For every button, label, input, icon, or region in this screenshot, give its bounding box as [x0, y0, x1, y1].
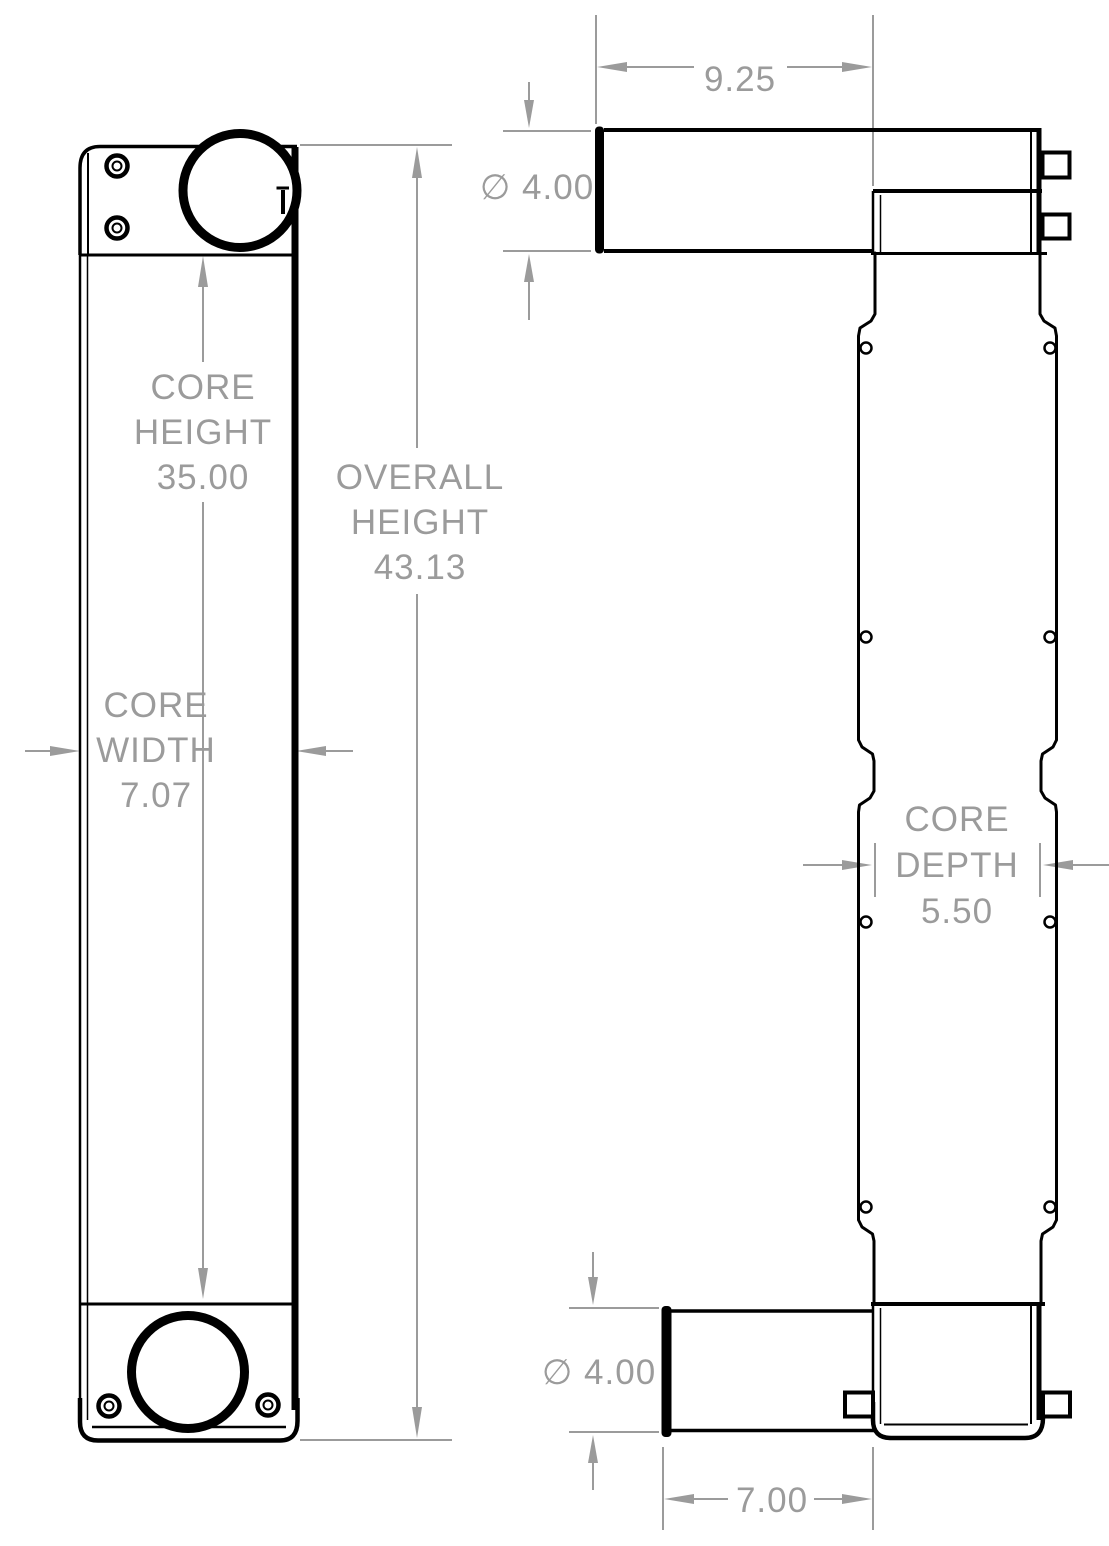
core-width-value: 7.07 — [120, 776, 192, 815]
side-body-right-profile — [1040, 253, 1057, 1304]
top-tube-length-dimension — [596, 15, 873, 186]
drawing-canvas: CORE HEIGHT 35.00 OVERALL HEIGHT 43.13 C… — [0, 0, 1109, 1546]
overall-height-dimension — [412, 147, 422, 1438]
core-height-label-line1: CORE — [150, 368, 255, 407]
side-bottom-tab-left — [845, 1393, 873, 1417]
front-top-bolt-holes — [107, 156, 128, 239]
side-bottom-tank — [871, 1302, 1045, 1438]
technical-drawing: CORE HEIGHT 35.00 OVERALL HEIGHT 43.13 C… — [0, 0, 1109, 1546]
side-view — [595, 127, 1070, 1439]
core-width-label-line2: WIDTH — [96, 731, 216, 770]
core-depth-value: 5.50 — [921, 892, 993, 931]
dimension-labels: CORE HEIGHT 35.00 OVERALL HEIGHT 43.13 C… — [96, 60, 1019, 1520]
overall-height-label-line2: HEIGHT — [351, 503, 489, 542]
side-top-tab-lower — [1043, 215, 1070, 239]
side-bottom-tab-right — [1043, 1393, 1070, 1417]
top-tube-diameter-value: ∅ 4.00 — [480, 168, 594, 207]
bottom-tube-diameter-value: ∅ 4.00 — [542, 1353, 656, 1392]
core-depth-label-line2: DEPTH — [895, 846, 1019, 885]
front-bottom-port-circle — [132, 1316, 245, 1429]
overall-height-value: 43.13 — [374, 548, 467, 587]
core-height-value: 35.00 — [157, 458, 250, 497]
side-top-tab-upper — [1043, 153, 1070, 178]
overall-height-label-line1: OVERALL — [336, 458, 504, 497]
side-bottom-tube-cap — [662, 1306, 672, 1437]
core-width-label-line1: CORE — [103, 686, 208, 725]
top-tube-length-value: 9.25 — [704, 60, 776, 99]
front-top-port-circle — [183, 134, 297, 248]
core-height-label-line2: HEIGHT — [134, 413, 272, 452]
bottom-tube-length-value: 7.00 — [736, 1481, 808, 1520]
side-body-left-profile — [859, 253, 876, 1304]
side-top-tank — [871, 191, 1047, 255]
core-depth-label-line1: CORE — [904, 800, 1009, 839]
side-body-rivet-holes — [861, 343, 1056, 1213]
side-top-tube-cap — [595, 127, 604, 254]
